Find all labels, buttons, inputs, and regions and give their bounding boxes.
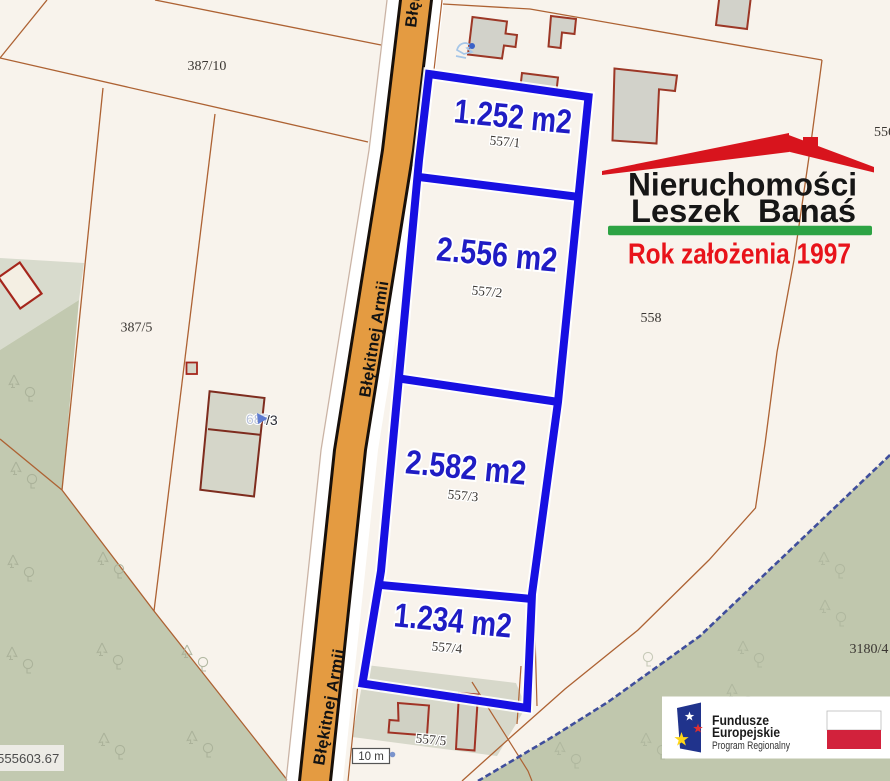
svg-text:556: 556	[874, 125, 890, 140]
svg-text:555603.67: 555603.67	[0, 751, 59, 766]
svg-text:557/1: 557/1	[489, 133, 521, 151]
svg-text:3180/4: 3180/4	[850, 642, 889, 657]
svg-text:Program Regionalny: Program Regionalny	[712, 740, 790, 752]
svg-text:/3: /3	[266, 412, 278, 428]
svg-text:557/2: 557/2	[471, 283, 503, 301]
svg-text:Leszek Banaś: Leszek Banaś	[631, 193, 856, 229]
svg-text:10 m: 10 m	[358, 751, 384, 763]
svg-text:558: 558	[641, 311, 662, 326]
svg-text:387/10: 387/10	[188, 59, 227, 74]
svg-text:Rok założenia 1997: Rok założenia 1997	[628, 239, 851, 271]
svg-text:557/3: 557/3	[447, 487, 479, 505]
svg-text:Europejskie: Europejskie	[712, 724, 780, 740]
svg-text:557/5: 557/5	[415, 731, 447, 749]
svg-text:557/4: 557/4	[431, 639, 463, 657]
svg-text:387/5: 387/5	[121, 321, 153, 336]
